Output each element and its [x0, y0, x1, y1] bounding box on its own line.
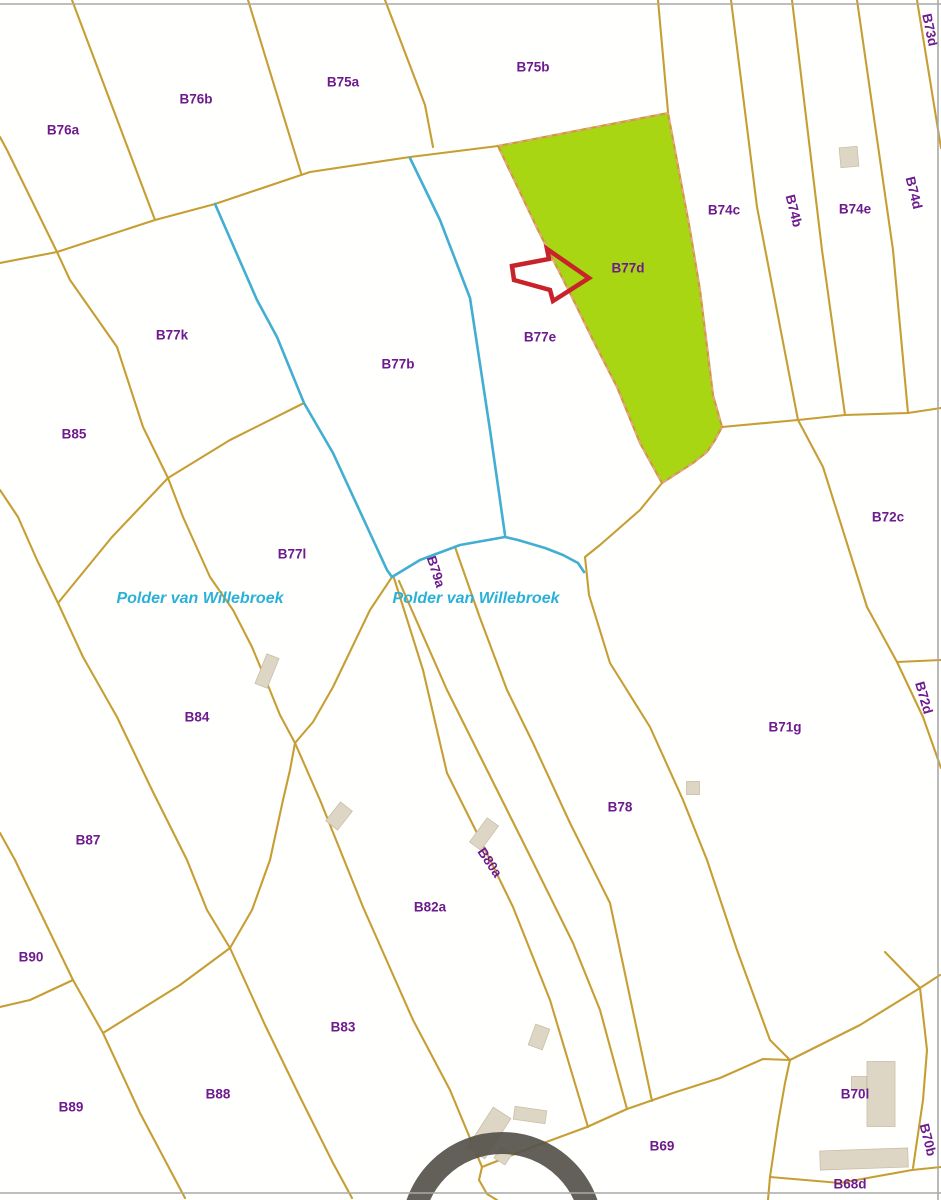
- parcel-label-B85: B85: [62, 427, 87, 442]
- building-footprint: [255, 654, 279, 689]
- water-boundary-line: [215, 204, 392, 577]
- parcel-boundary-line: [731, 0, 941, 768]
- building-footprint: [867, 1062, 895, 1127]
- parcel-label-B69: B69: [650, 1139, 675, 1154]
- parcel-label-B70l: B70l: [841, 1087, 870, 1102]
- parcel-label-B87: B87: [76, 833, 101, 848]
- parcel-label-B77l: B77l: [278, 547, 307, 562]
- parcel-label-B74d: B74d: [903, 175, 926, 211]
- parcel-boundary-line: [0, 833, 185, 1198]
- building-footprint: [528, 1024, 550, 1050]
- parcel-label-B75a: B75a: [327, 75, 360, 90]
- map-canvas[interactable]: B76aB76bB75aB75bB73dB74cB74bB74eB74dB77d…: [0, 0, 941, 1200]
- parcel-label-B70b: B70b: [917, 1122, 940, 1158]
- parcel-label-B72d: B72d: [912, 680, 936, 716]
- parcel-label-B74c: B74c: [708, 203, 741, 218]
- parcel-label-B90: B90: [19, 950, 44, 965]
- parcel-boundary-line: [0, 146, 498, 263]
- parcel-label-B77e: B77e: [524, 330, 557, 345]
- parcel-label-B71g: B71g: [768, 720, 801, 735]
- parcel-boundary-line: [58, 478, 168, 603]
- parcel-label-B82a: B82a: [414, 900, 447, 915]
- parcel-boundary-line: [103, 948, 230, 1033]
- parcel-boundary-line: [385, 0, 433, 147]
- area-label-polder: Polder van Willebroek: [116, 590, 284, 607]
- building-footprint: [839, 146, 859, 167]
- parcel-label-B77k: B77k: [156, 328, 189, 343]
- parcel-boundary-line: [58, 603, 230, 948]
- parcel-label-B89: B89: [59, 1100, 84, 1115]
- parcel-label-B74e: B74e: [839, 202, 872, 217]
- parcel-boundary-line: [399, 581, 627, 1109]
- parcel-label-B78: B78: [608, 800, 633, 815]
- parcel-boundary-line: [658, 0, 668, 112]
- parcel-boundary-line: [168, 403, 304, 478]
- parcel-label-B84: B84: [185, 710, 210, 725]
- stamp-arc: [412, 1143, 592, 1200]
- parcel-label-B74b: B74b: [783, 193, 806, 229]
- parcel-label-B68d: B68d: [833, 1177, 866, 1192]
- parcel-label-B77b: B77b: [381, 357, 414, 372]
- parcel-boundary-line: [230, 577, 392, 948]
- water-boundary-line: [410, 158, 505, 535]
- parcel-boundary-line: [479, 1167, 497, 1200]
- parcel-label-B88: B88: [206, 1087, 231, 1102]
- parcel-label-B75b: B75b: [516, 60, 549, 75]
- building-footprint: [820, 1148, 909, 1170]
- parcel-label-B77d: B77d: [611, 261, 644, 276]
- parcel-boundary-line: [897, 660, 941, 662]
- parcel-label-B76a: B76a: [47, 123, 80, 138]
- parcel-label-B83: B83: [331, 1020, 356, 1035]
- highlighted-parcel-B77d[interactable]: [498, 113, 722, 483]
- parcel-boundary-line: [72, 0, 155, 220]
- parcel-boundary-line: [0, 980, 73, 1007]
- parcel-label-B76b: B76b: [179, 92, 212, 107]
- parcel-label-B79a: B79a: [424, 554, 448, 590]
- area-label-polder: Polder van Willebroek: [392, 590, 560, 607]
- parcel-boundary-line: [585, 483, 790, 1060]
- parcel-boundary-line: [885, 952, 920, 988]
- water-boundary-line: [392, 537, 584, 577]
- cadastral-map[interactable]: B76aB76bB75aB75bB73dB74cB74bB74eB74dB77d…: [0, 0, 941, 1200]
- parcel-label-B72c: B72c: [872, 510, 905, 525]
- building-footprint: [687, 782, 700, 795]
- parcel-boundary-line: [230, 948, 352, 1198]
- parcel-boundary-line: [248, 0, 301, 173]
- building-footprint: [513, 1106, 546, 1123]
- parcel-label-B80a: B80a: [475, 845, 506, 881]
- building-footprint: [470, 818, 499, 850]
- parcel-boundary-line: [0, 490, 58, 603]
